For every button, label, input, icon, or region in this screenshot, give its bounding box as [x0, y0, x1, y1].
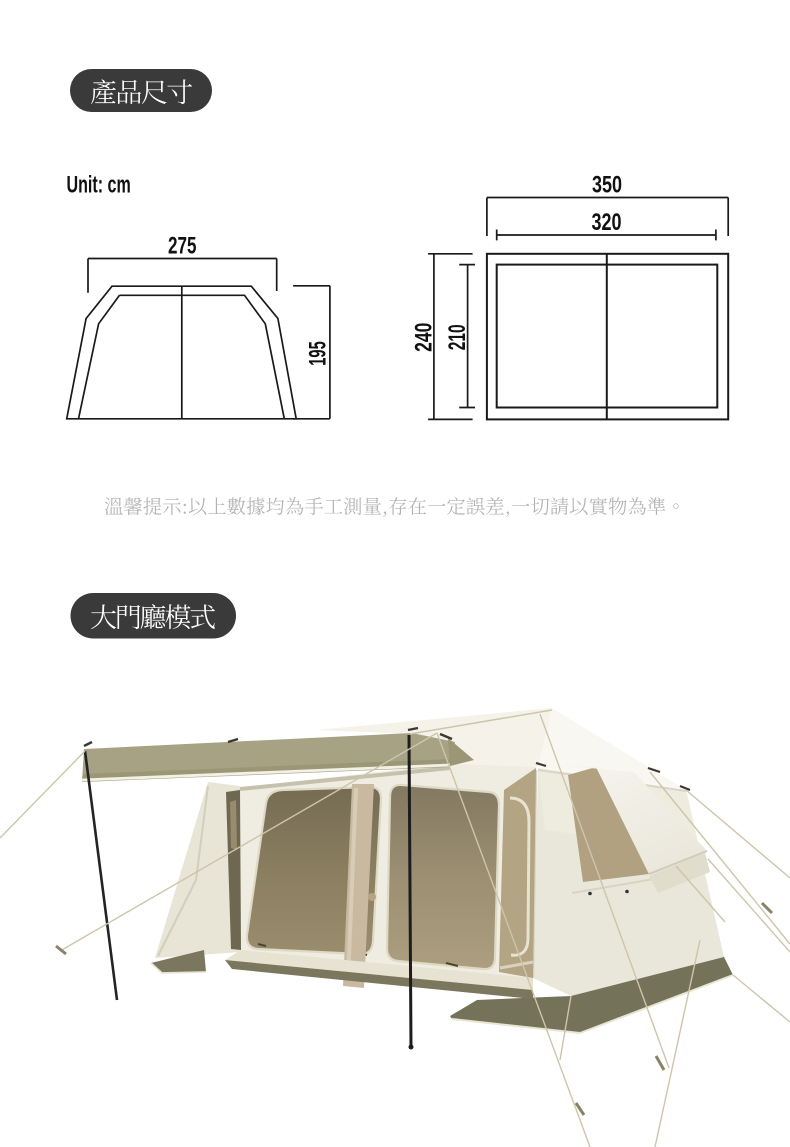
svg-text:195: 195 [305, 341, 332, 365]
svg-text:240: 240 [411, 323, 437, 352]
svg-text:210: 210 [445, 324, 471, 350]
svg-text:Unit: cm: Unit: cm [67, 172, 131, 198]
svg-text:320: 320 [591, 210, 621, 236]
svg-text:275: 275 [168, 233, 196, 260]
svg-text:350: 350 [592, 172, 622, 198]
